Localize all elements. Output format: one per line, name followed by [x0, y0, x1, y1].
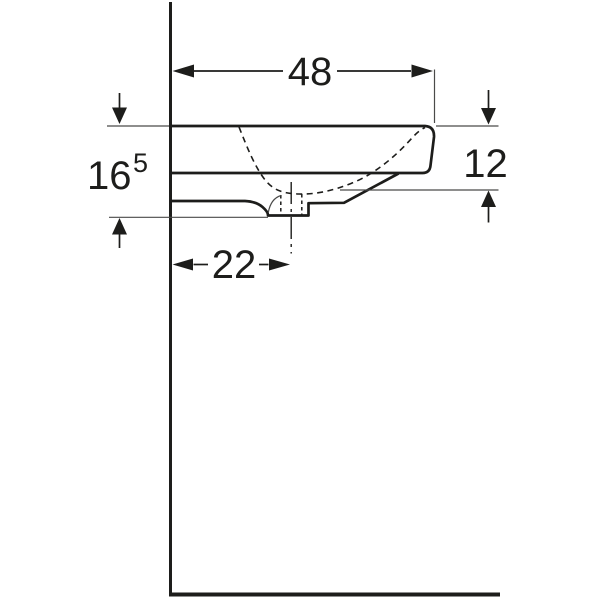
arrow-left-icon — [173, 65, 195, 78]
arrow-right-icon — [412, 65, 434, 78]
dimension-depth: 12 — [463, 90, 508, 223]
arrow-up-icon — [481, 191, 496, 208]
arrow-right-icon — [269, 259, 290, 271]
basin-rim-profile — [171, 126, 434, 173]
bowl-hidden-outline — [239, 127, 425, 194]
basin-underside-profile — [171, 174, 399, 216]
arrow-left-icon — [173, 259, 194, 271]
arrow-down-icon — [481, 108, 496, 125]
dim-offset-label: 22 — [212, 243, 257, 287]
dim-width-label: 48 — [288, 50, 333, 94]
arrow-down-icon — [112, 108, 127, 125]
arrow-up-icon — [112, 218, 127, 235]
dim-height-superscript: 5 — [133, 148, 148, 178]
dimension-width: 48 — [173, 50, 434, 94]
technical-drawing-washbasin-side-section: 48 16 5 12 22 — [0, 0, 600, 600]
dimension-drain-offset: 22 — [173, 243, 291, 287]
dim-height-label: 16 — [87, 154, 132, 198]
dim-depth-label: 12 — [463, 142, 508, 186]
drain-recess-arc — [268, 196, 281, 213]
drawing-svg: 48 16 5 12 22 — [0, 0, 600, 600]
dimension-height: 16 5 — [87, 93, 148, 248]
